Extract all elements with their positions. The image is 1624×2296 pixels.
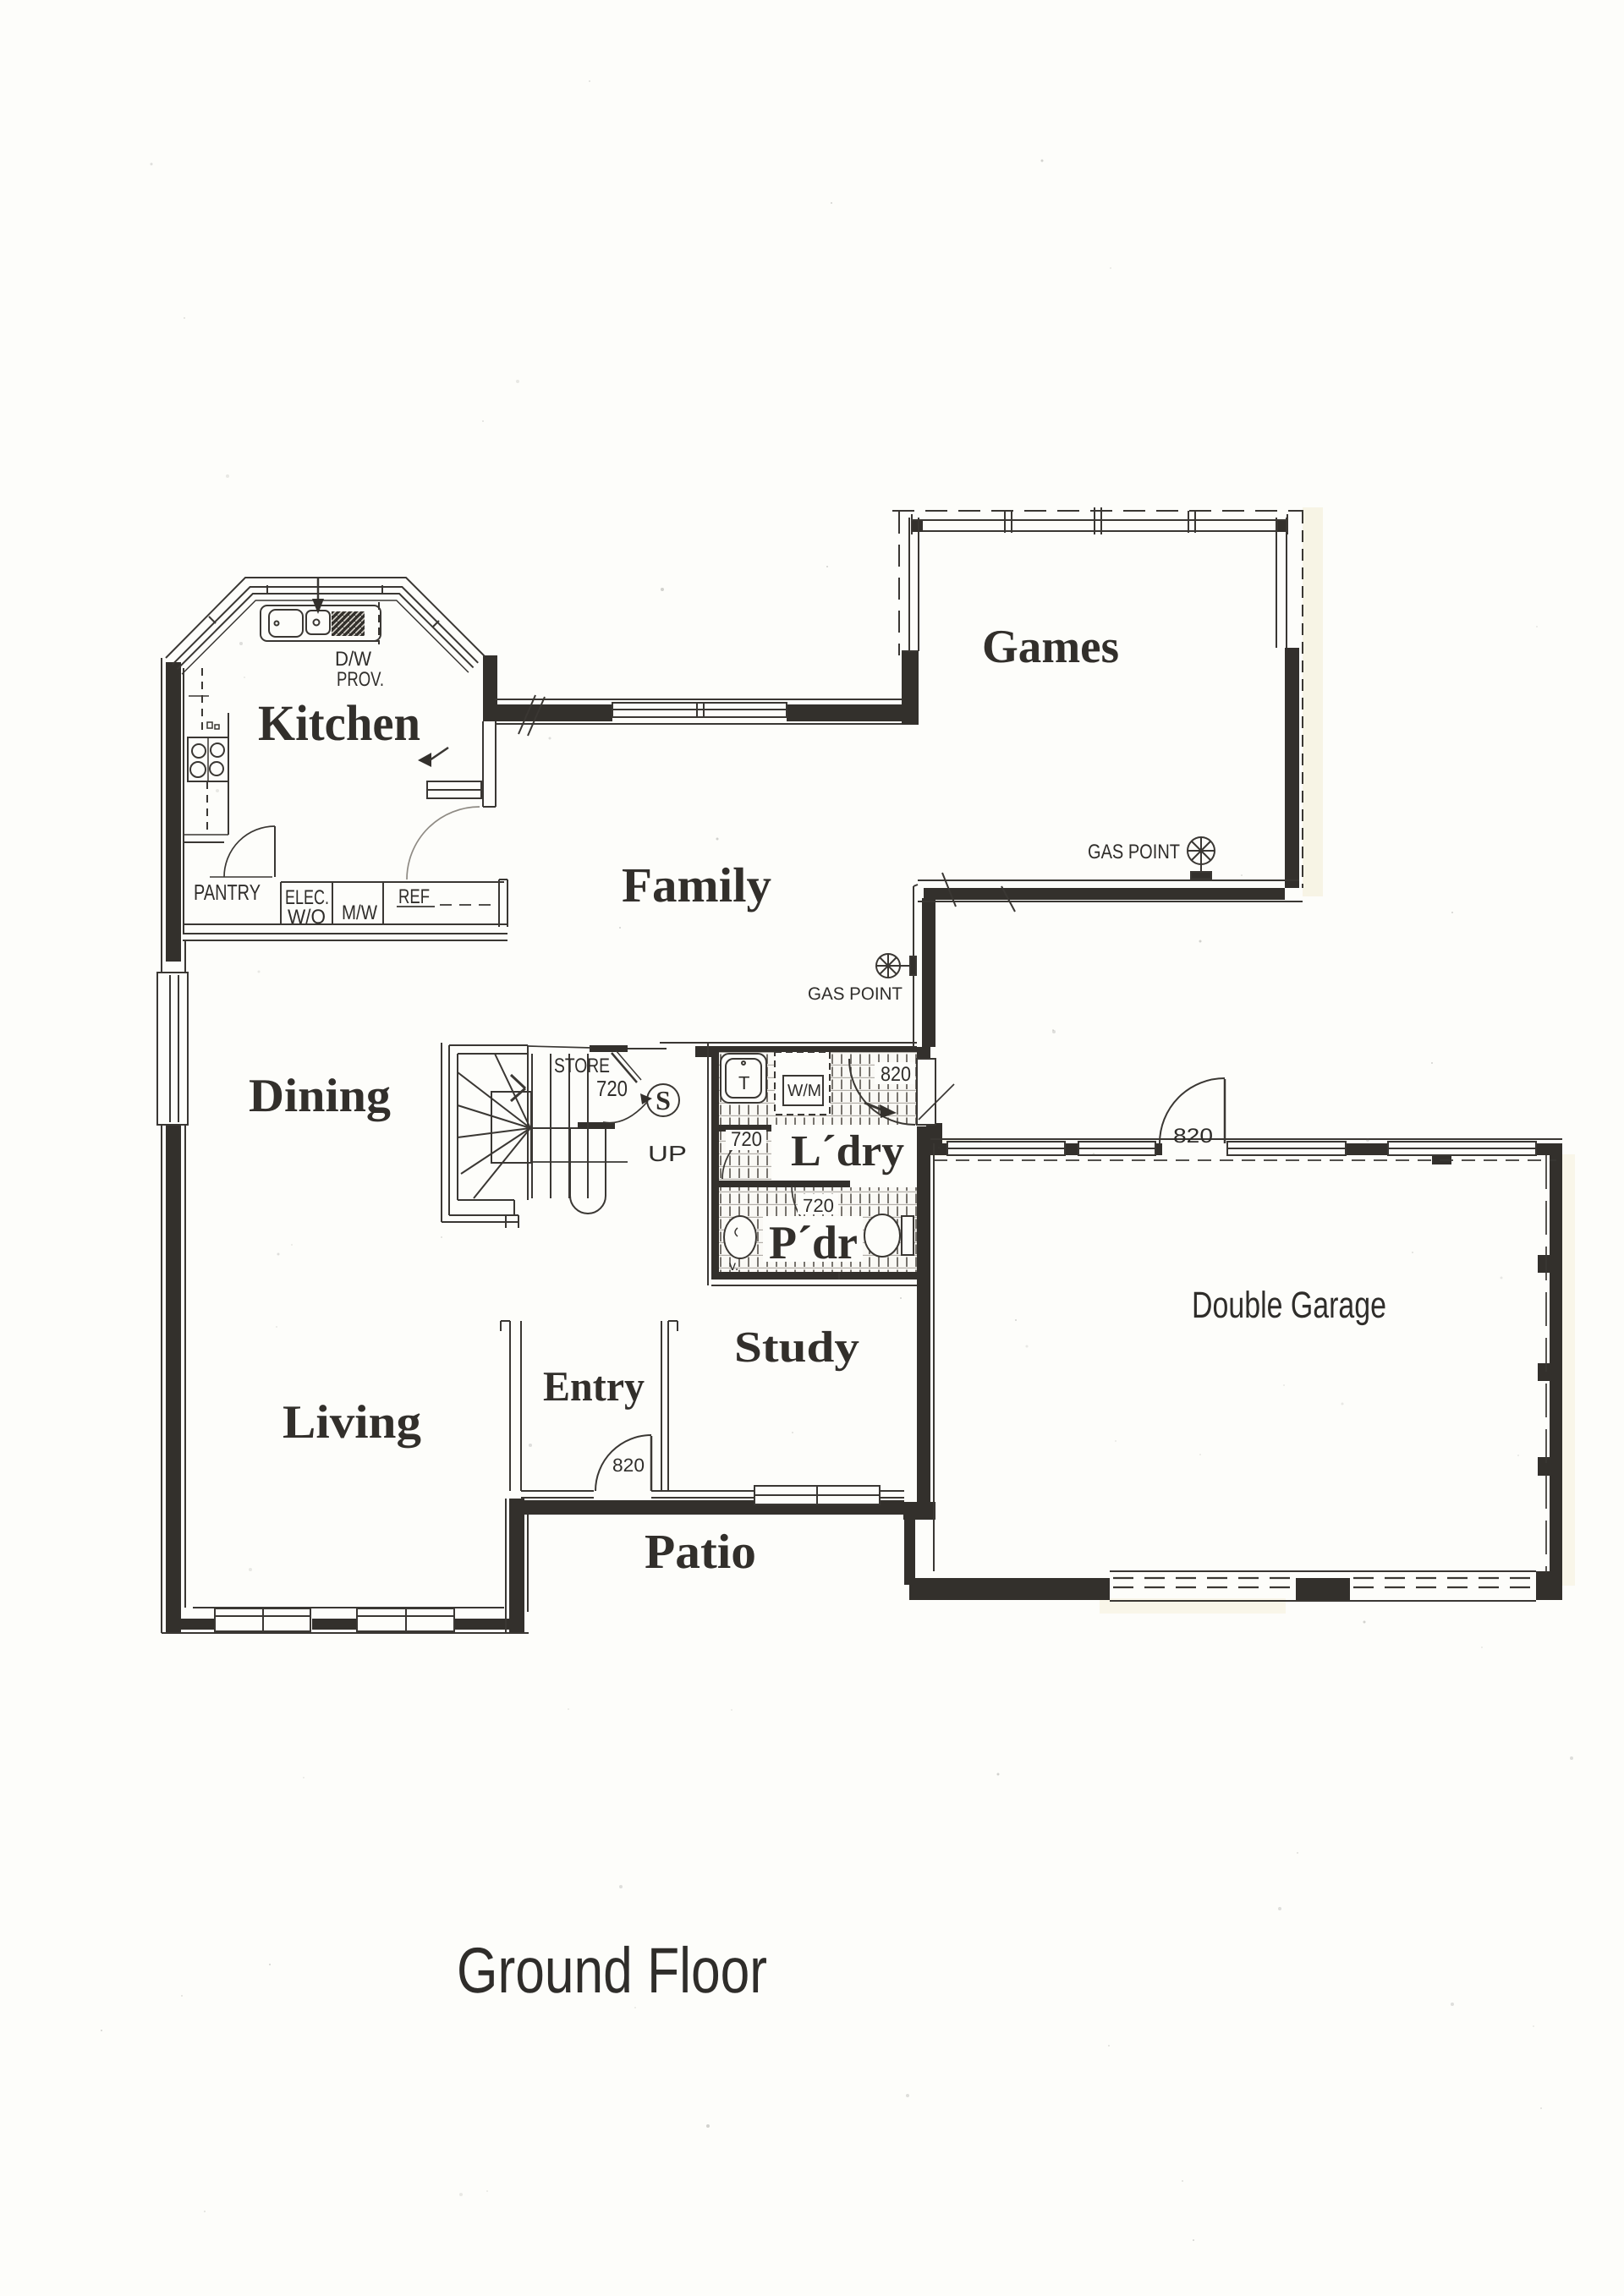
- svg-text:GAS POINT: GAS POINT: [808, 984, 903, 1004]
- svg-text:GAS POINT: GAS POINT: [1088, 841, 1180, 863]
- svg-text:820: 820: [612, 1455, 645, 1476]
- svg-text:W/M: W/M: [787, 1082, 821, 1100]
- svg-text:PANTRY: PANTRY: [194, 879, 261, 905]
- svg-text:Dining: Dining: [249, 1070, 391, 1122]
- svg-text:STORE: STORE: [554, 1055, 610, 1077]
- svg-text:T: T: [738, 1072, 749, 1093]
- svg-text:720: 720: [731, 1128, 762, 1151]
- svg-text:Living: Living: [283, 1396, 421, 1449]
- svg-text:PROV.: PROV.: [337, 668, 384, 691]
- svg-text:720: 720: [803, 1195, 834, 1216]
- svg-text:Double Garage: Double Garage: [1192, 1285, 1386, 1326]
- svg-text:M/W: M/W: [342, 901, 377, 924]
- svg-text:720: 720: [596, 1076, 628, 1101]
- svg-text:W/O: W/O: [288, 906, 326, 929]
- svg-text:L´dry: L´dry: [791, 1127, 904, 1175]
- svg-text:820: 820: [881, 1063, 911, 1086]
- svg-text:P´dr: P´dr: [769, 1217, 858, 1269]
- svg-text:Entry: Entry: [543, 1362, 645, 1410]
- svg-text:Games: Games: [982, 621, 1119, 673]
- svg-text:Kitchen: Kitchen: [258, 695, 420, 751]
- svg-text:D/W: D/W: [335, 648, 371, 671]
- svg-text:v.: v.: [729, 1259, 738, 1274]
- svg-text:Family: Family: [622, 858, 771, 912]
- svg-text:820: 820: [1173, 1125, 1213, 1148]
- svg-text:Ground Floor: Ground Floor: [457, 1935, 767, 2007]
- svg-text:Study: Study: [734, 1323, 859, 1372]
- svg-text:S: S: [656, 1085, 671, 1115]
- svg-text:Patio: Patio: [645, 1524, 756, 1579]
- svg-text:REF: REF: [398, 885, 430, 908]
- svg-text:UP: UP: [648, 1141, 687, 1166]
